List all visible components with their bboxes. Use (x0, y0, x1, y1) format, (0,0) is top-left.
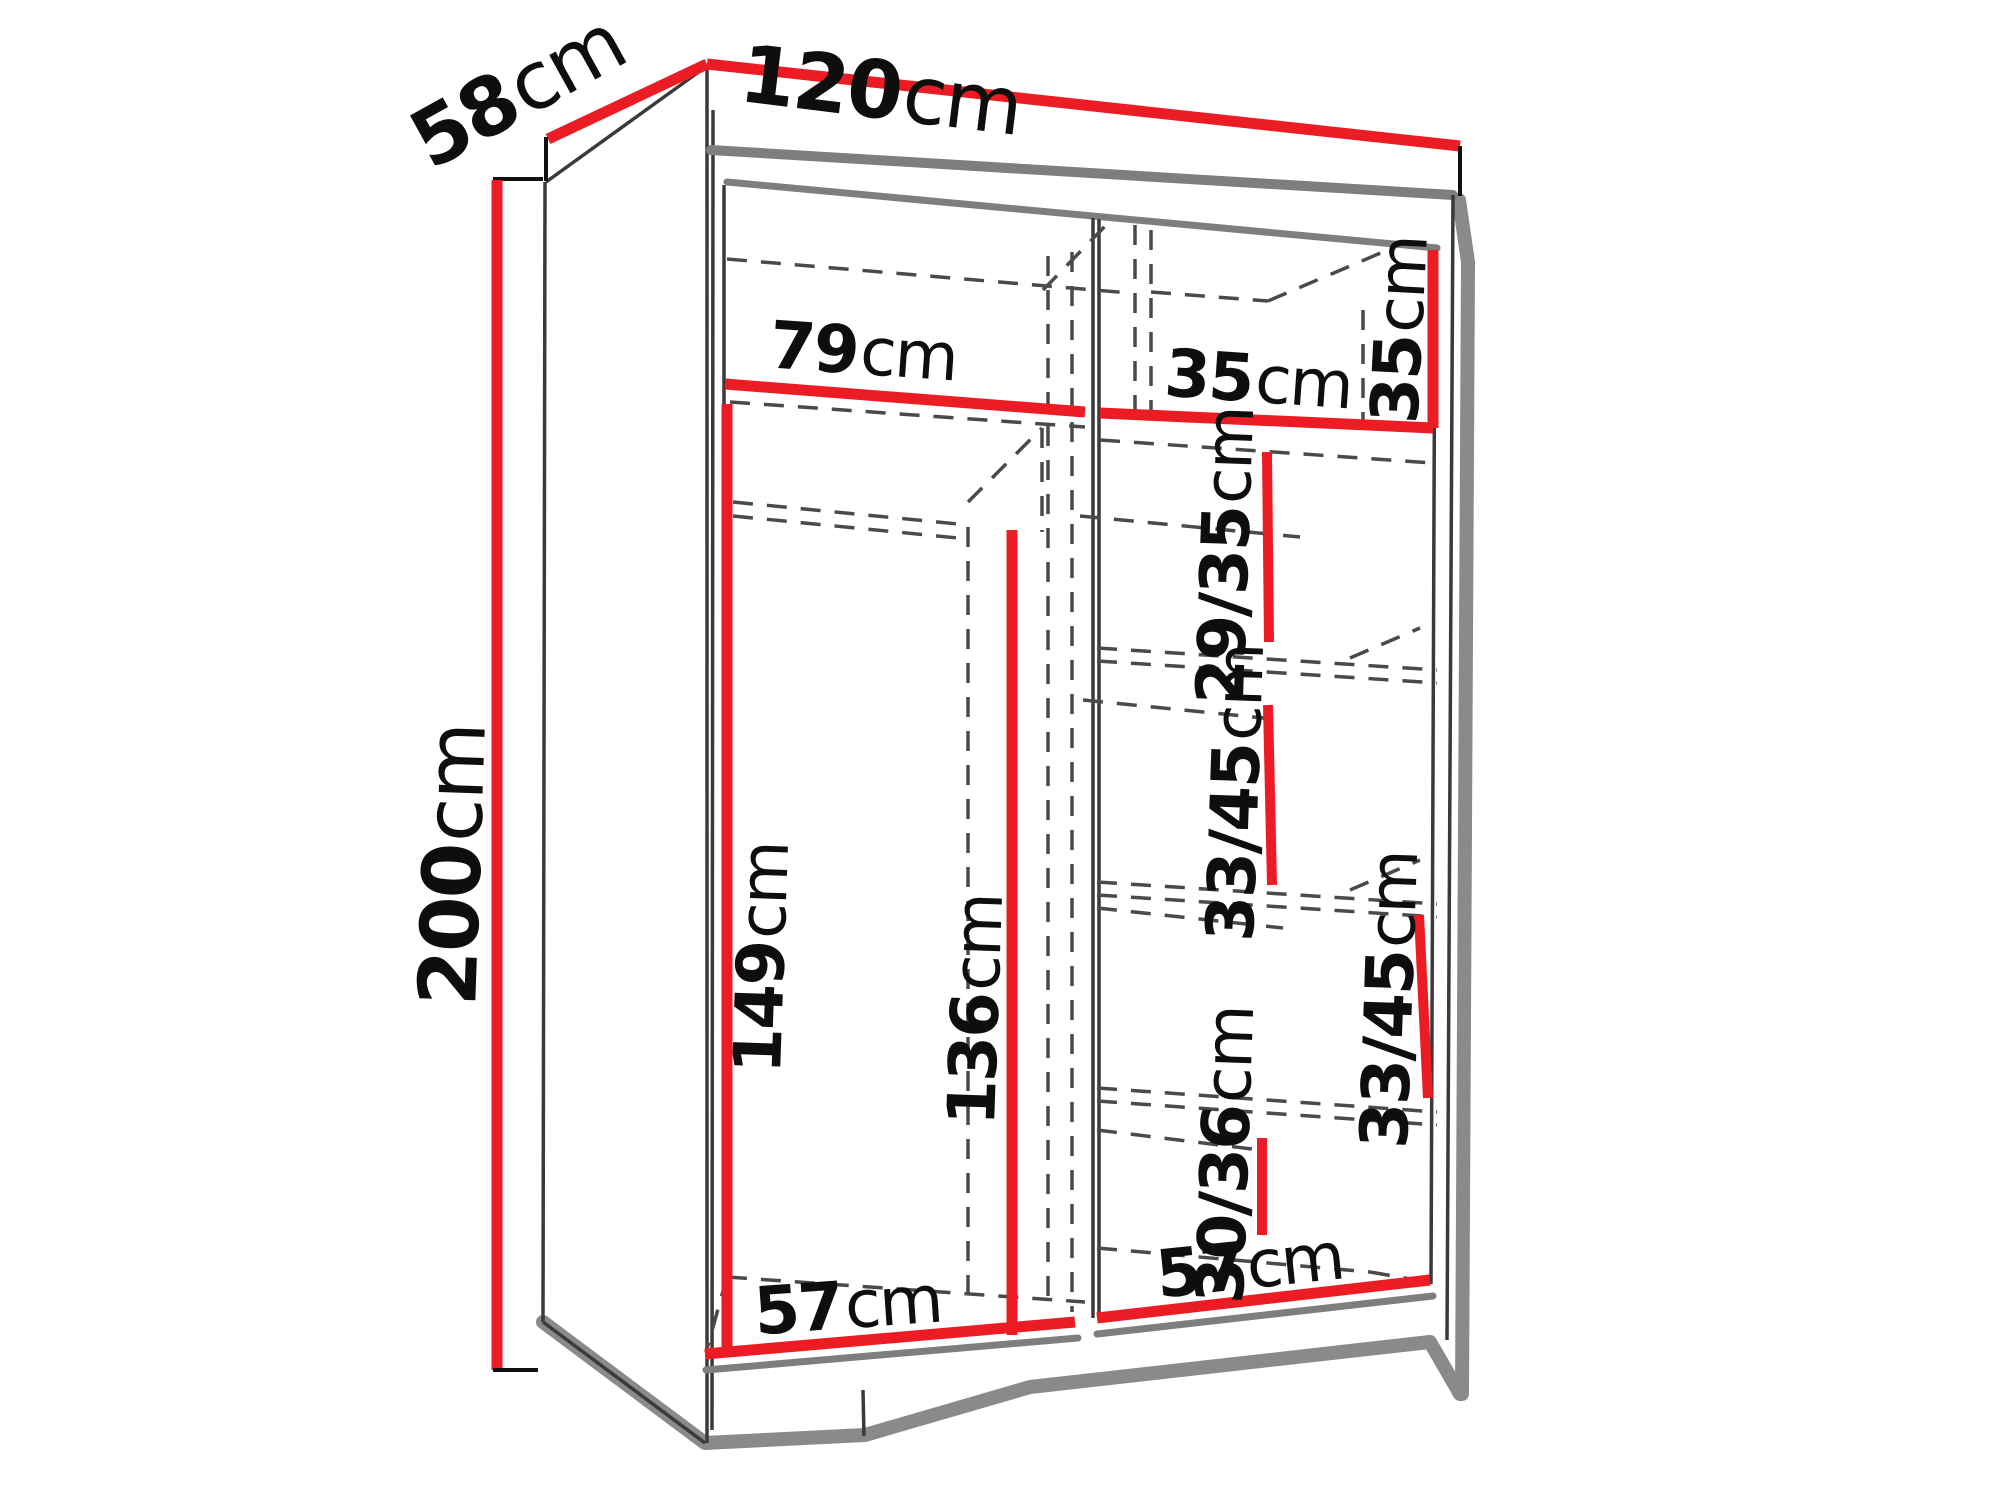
label-height-200cm: 200cm (401, 722, 504, 1007)
label-cubby-33-45cm-right: 33/45cm (1346, 850, 1433, 1150)
label-cubby-33-45cm-mid: 33/45cm (1192, 643, 1279, 943)
plinth-seam (863, 1390, 864, 1436)
label-floor-left-57cm: 57cm (752, 1261, 944, 1351)
diagram-canvas: 58cm 120cm 200cm 79cm 35cm 35cm 29/35cm … (0, 0, 2000, 1500)
label-top-shelf-79cm: 79cm (767, 307, 959, 397)
label-hanging-149cm: 149cm (719, 841, 804, 1075)
left-side-panel (543, 66, 707, 1443)
label-frame-136cm: 136cm (933, 893, 1018, 1127)
label-top-right-35cm: 35cm (1356, 234, 1443, 425)
wardrobe-dimension-diagram: 58cm 120cm 200cm 79cm 35cm 35cm 29/35cm … (0, 0, 2000, 1500)
dim-line-cubby-29-35 (1267, 452, 1269, 642)
side-panel-back-edge (543, 182, 545, 1322)
front-left-corner-inner (712, 110, 713, 1430)
